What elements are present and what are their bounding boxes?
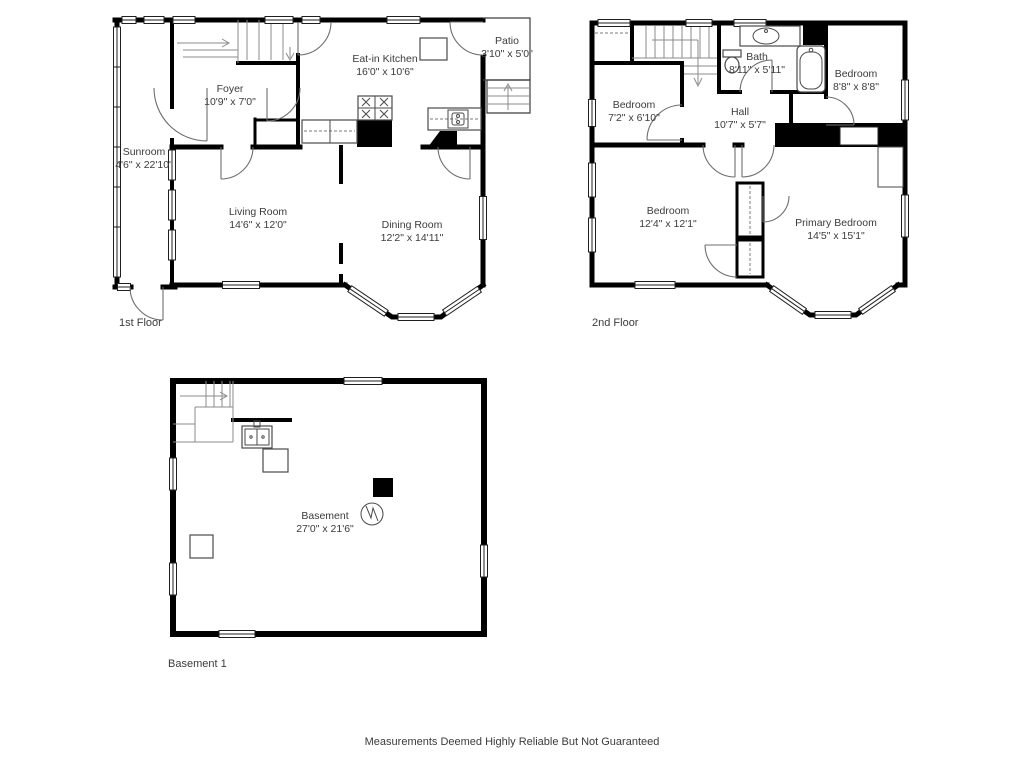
label-patio: Patio3'10" x 5'0" <box>481 35 533 60</box>
basement-windows <box>170 378 488 638</box>
window-icon <box>118 284 131 291</box>
first-floor-doors <box>130 22 483 320</box>
kitchen-counter <box>302 120 357 143</box>
stairs-up-arrow-icon <box>504 84 512 110</box>
second-floor-closets <box>737 183 763 277</box>
laundry-sink-icon <box>242 421 272 448</box>
window-icon <box>219 631 255 638</box>
door-icon <box>742 145 774 177</box>
window-icon <box>481 545 488 577</box>
bathroom-sink-icon <box>740 26 800 46</box>
label-living-room: Living Room14'6" x 12'0" <box>229 206 288 231</box>
label-basement: Basement27'0" x 21'6" <box>296 510 354 535</box>
door-icon <box>130 287 163 320</box>
window-band-icon <box>114 27 121 277</box>
refrigerator-icon <box>420 38 447 60</box>
first-floor-title: 1st Floor <box>119 317 162 329</box>
second-floor-plan: Bedroom7'2" x 6'10" Bath8'11" x 5'11" Be… <box>589 20 909 330</box>
bay-window-icon <box>398 314 434 321</box>
floorplan-canvas: Sunroom4'6" x 22'10" Foyer10'9" x 7'0" E… <box>0 0 1024 768</box>
basement-stairs-icon <box>173 381 233 442</box>
window-icon <box>598 20 630 27</box>
second-floor-title: 2nd Floor <box>592 317 639 329</box>
water-heater-icon <box>361 503 383 525</box>
window-icon <box>480 197 487 240</box>
primary-closet <box>878 147 903 187</box>
label-foyer: Foyer10'9" x 7'0" <box>204 83 256 108</box>
first-floor-stairs-icon <box>177 20 294 63</box>
bay-window-icon <box>815 312 851 319</box>
door-icon <box>221 147 253 179</box>
door-icon <box>154 88 207 141</box>
window-icon <box>170 458 177 490</box>
door-icon <box>267 88 300 121</box>
label-primary-bedroom: Primary Bedroom14'5" x 15'1" <box>795 217 877 242</box>
label-hall: Hall10'7" x 5'7" <box>714 106 766 131</box>
basement-walls <box>173 381 484 634</box>
window-icon <box>902 80 909 120</box>
support-post <box>190 535 213 558</box>
utility-box <box>263 449 288 472</box>
label-dining-room: Dining Room12'2" x 14'11" <box>381 219 444 244</box>
door-icon <box>703 145 735 177</box>
window-icon <box>344 378 382 385</box>
window-icon <box>170 563 177 595</box>
window-icon <box>589 100 596 127</box>
second-floor-stairs-icon <box>632 25 717 86</box>
window-icon <box>686 20 712 27</box>
window-icon <box>589 163 596 197</box>
window-icon <box>902 195 909 237</box>
first-floor-plan: Sunroom4'6" x 22'10" Foyer10'9" x 7'0" E… <box>114 17 534 330</box>
window-icon <box>169 230 176 260</box>
door-icon <box>438 147 470 179</box>
basement-plan: Basement27'0" x 21'6" Basement 1 <box>168 378 488 671</box>
window-icon <box>169 190 176 220</box>
label-bedroom-small: Bedroom7'2" x 6'10" <box>608 99 660 124</box>
window-icon <box>265 17 293 24</box>
label-bedroom-left: Bedroom12'4" x 12'1" <box>639 205 697 230</box>
floorplan-page: Sunroom4'6" x 22'10" Foyer10'9" x 7'0" E… <box>0 0 1024 768</box>
label-kitchen: Eat-in Kitchen16'0" x 10'6" <box>352 53 418 78</box>
door-icon <box>450 22 483 55</box>
window-icon <box>635 282 675 289</box>
bay-window-icon <box>770 286 807 315</box>
bathtub-icon <box>797 46 825 92</box>
kitchen-sink-counter <box>428 108 481 130</box>
door-icon <box>705 245 737 277</box>
label-sunroom: Sunroom4'6" x 22'10" <box>115 146 173 171</box>
stove-icon <box>358 96 392 120</box>
window-icon <box>223 282 260 289</box>
label-bedroom-corner: Bedroom8'8" x 8'8" <box>833 68 879 93</box>
bay-window-icon <box>348 286 388 316</box>
window-icon <box>173 17 195 24</box>
chimney-icon <box>373 478 393 497</box>
patio-outline <box>483 18 530 113</box>
window-icon <box>122 17 136 24</box>
window-icon <box>387 17 420 24</box>
basement-title: Basement 1 <box>168 658 227 670</box>
window-icon <box>144 17 164 24</box>
disclaimer-text: Measurements Deemed Highly Reliable But … <box>365 736 660 748</box>
bay-window-icon <box>443 286 482 315</box>
closet-inset <box>840 127 878 145</box>
door-icon <box>763 196 789 222</box>
door-icon <box>826 97 854 125</box>
door-icon <box>298 22 331 55</box>
bay-window-icon <box>859 286 896 315</box>
window-icon <box>589 218 596 252</box>
window-icon <box>302 17 320 24</box>
